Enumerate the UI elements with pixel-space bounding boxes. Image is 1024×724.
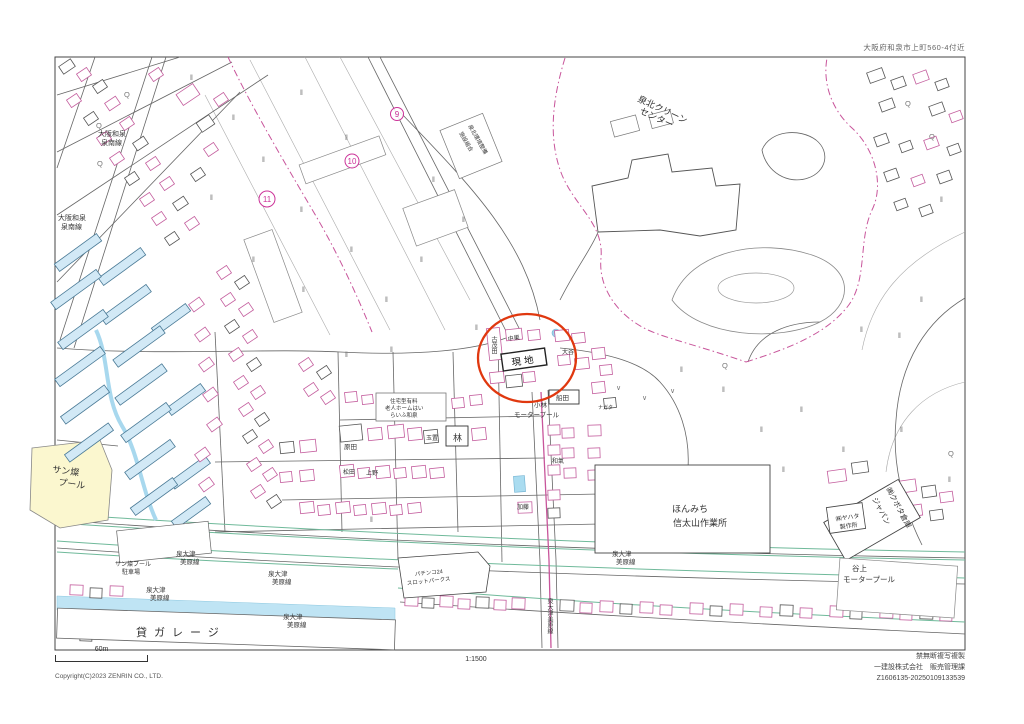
field-symbol: ‖ [350, 247, 353, 254]
tree-symbol: Q [124, 90, 130, 99]
building [523, 371, 536, 382]
building [394, 467, 407, 478]
field-symbol: ‖ [385, 297, 388, 304]
notice-line: 禁無断複写複製 [874, 652, 965, 663]
field-symbol: ‖ [370, 517, 373, 524]
building [512, 598, 525, 609]
map-label: 美原線 [272, 577, 292, 586]
map-label: ほんみち [672, 504, 708, 514]
tree-symbol: Q [722, 361, 728, 370]
map-label: 泉南線 [101, 138, 122, 147]
field-symbol: ‖ [262, 157, 265, 164]
scale-bar-label: 60m [95, 646, 109, 653]
building [411, 465, 426, 478]
field-symbol: ‖ [252, 257, 255, 264]
map-label: 老人ホームはい [385, 404, 424, 412]
field-symbol: ‖ [800, 407, 803, 414]
building [851, 461, 868, 474]
building [335, 501, 350, 513]
building [560, 600, 574, 611]
building [548, 425, 560, 435]
map-label: 美原線 [150, 593, 170, 602]
building [562, 448, 574, 458]
map-label: 原田 [344, 443, 357, 451]
building [548, 465, 560, 475]
building [710, 606, 722, 616]
building [800, 608, 812, 618]
building [476, 597, 489, 608]
building [407, 427, 422, 440]
building [528, 329, 541, 340]
building [921, 485, 936, 498]
tree-symbol: Q [97, 159, 103, 168]
field-symbol: ‖ [842, 447, 845, 454]
map-label: 美原線 [287, 620, 307, 629]
map-label: 古茂田 [490, 335, 497, 355]
map-label: サン燦プール [115, 560, 151, 568]
building [929, 509, 943, 521]
map-label: らいふ和泉 [390, 411, 418, 419]
map-label: 和氣 [552, 457, 564, 465]
tree-symbol: Q [96, 121, 102, 130]
map-label: 大阪和泉 [98, 129, 126, 138]
building [339, 424, 363, 442]
area-number-label: 10 [348, 157, 357, 166]
building [690, 603, 703, 614]
map-label: 谷上 [852, 564, 867, 573]
building [600, 364, 613, 375]
building [489, 371, 504, 383]
building [591, 381, 605, 393]
building [564, 468, 576, 478]
building [588, 448, 600, 458]
building [318, 504, 331, 515]
map-label: 松田 [343, 468, 355, 476]
map-label: 信太山作業所 [673, 517, 727, 528]
building [390, 504, 403, 515]
field-symbol: ‖ [232, 115, 235, 122]
building [760, 607, 772, 617]
area-number-label: 11 [263, 195, 272, 204]
map-label: 加藤 [517, 503, 529, 511]
map-label: 美原線 [616, 557, 636, 566]
building [299, 501, 314, 513]
field-symbol: ‖ [722, 387, 725, 394]
building [780, 605, 793, 616]
building [591, 347, 605, 359]
map-label: 林 [453, 432, 462, 443]
field-symbol: ‖ [940, 197, 943, 204]
map-label: 大谷 [562, 348, 574, 356]
building [110, 586, 123, 596]
building [471, 427, 486, 440]
building [440, 596, 453, 607]
field-symbol: ‖ [475, 325, 478, 332]
building [580, 603, 592, 613]
field-symbol: ‖ [345, 352, 348, 359]
map-label: モータープール [843, 575, 896, 584]
building [362, 394, 374, 404]
vegetation-symbol: ∨ [616, 385, 621, 392]
building [422, 598, 434, 608]
map-label: 船田 [556, 393, 569, 402]
field-symbol: ‖ [420, 257, 423, 264]
field-symbol: ‖ [210, 195, 213, 202]
rights-block: 禁無断複写複製 一建設株式会社 販売管理課 Z1606135-202501091… [874, 652, 965, 685]
building [505, 374, 522, 388]
field-symbol: ‖ [760, 427, 763, 434]
map-label: 上野 [366, 469, 378, 477]
map-label: 美原線 [180, 557, 200, 566]
building [939, 491, 953, 503]
map-label: 泉大津 [146, 585, 166, 594]
map-label: 泉大津 [283, 612, 303, 621]
field-symbol: ‖ [920, 297, 923, 304]
building [640, 602, 653, 613]
field-symbol: ‖ [782, 467, 785, 474]
building [299, 439, 316, 453]
building [548, 445, 560, 455]
building [827, 469, 846, 483]
building [70, 585, 83, 595]
field-symbol: ‖ [432, 177, 435, 184]
water-tank [513, 476, 525, 493]
field-symbol: ‖ [300, 207, 303, 214]
building [367, 427, 382, 440]
publisher-line: 一建設株式会社 販売管理課 [874, 663, 965, 674]
tree-symbol: Q [929, 132, 935, 141]
map-label: モータープール [514, 410, 560, 419]
building [345, 391, 358, 402]
map-label: 玉置 [426, 435, 438, 442]
building [452, 397, 465, 408]
field-symbol: ‖ [300, 90, 303, 97]
tree-symbol: Q [948, 449, 954, 458]
building [470, 394, 483, 405]
field-symbol: ‖ [860, 327, 863, 334]
building [494, 600, 506, 610]
building [588, 425, 601, 436]
building [660, 605, 672, 615]
building [458, 599, 470, 609]
field-symbol: ‖ [345, 135, 348, 142]
copyright: Copyright(C)2023 ZENRIN CO., LTD. [55, 673, 163, 680]
serial-line: Z1606135-20250109133539 [874, 674, 965, 685]
map-label: 泉大津 [612, 549, 632, 558]
zenrin-map-sheet: 大阪府和泉市上町560-4付近 [0, 0, 1024, 724]
building [430, 467, 445, 478]
building [408, 502, 422, 513]
building [548, 508, 560, 518]
building [558, 354, 571, 365]
field-symbol: ‖ [302, 287, 305, 294]
map-label: 住宅型有料 [390, 397, 418, 405]
building [620, 604, 632, 614]
vegetation-symbol: ∨ [642, 395, 647, 402]
map-label: 大阪和泉 [58, 213, 86, 222]
building [600, 601, 613, 612]
pachinko-building [398, 552, 490, 598]
vegetation-symbol: ∨ [670, 388, 675, 395]
map-label: 泉大津 [268, 569, 288, 578]
field-symbol: ‖ [948, 477, 951, 484]
building [371, 502, 386, 514]
building [354, 504, 367, 515]
map-label: 貸ガレージ [136, 625, 226, 639]
building [90, 588, 102, 598]
building [387, 424, 404, 439]
building [548, 490, 560, 500]
building [562, 428, 574, 438]
scale-bar-rule [55, 655, 148, 662]
map-label: 泉南線 [61, 222, 82, 231]
field-symbol: ‖ [190, 75, 193, 82]
scale-bar: 60m [55, 646, 148, 662]
field-symbol: ‖ [462, 217, 465, 224]
scale-ratio: 1:1500 [446, 656, 506, 663]
field-symbol: ‖ [390, 347, 393, 354]
building [280, 471, 293, 482]
building [299, 469, 314, 481]
field-symbol: ‖ [680, 367, 683, 374]
area-number-label: 9 [395, 110, 400, 119]
field-symbol: ‖ [898, 333, 901, 340]
map-label: 駐車場 [122, 568, 140, 576]
building [730, 604, 743, 615]
building [279, 441, 294, 453]
tree-symbol: Q [905, 99, 911, 108]
map-label: ナガタ [598, 404, 613, 411]
map-label: 泉大津美原線 [546, 597, 553, 634]
map-label: 泉大津 [176, 549, 196, 558]
map-canvas: 泉北クリーンセンター大阪和泉泉南線大阪和泉泉南線泉北環境整備施設組合サン燦プール… [0, 0, 1024, 724]
field-symbol: ‖ [900, 427, 903, 434]
